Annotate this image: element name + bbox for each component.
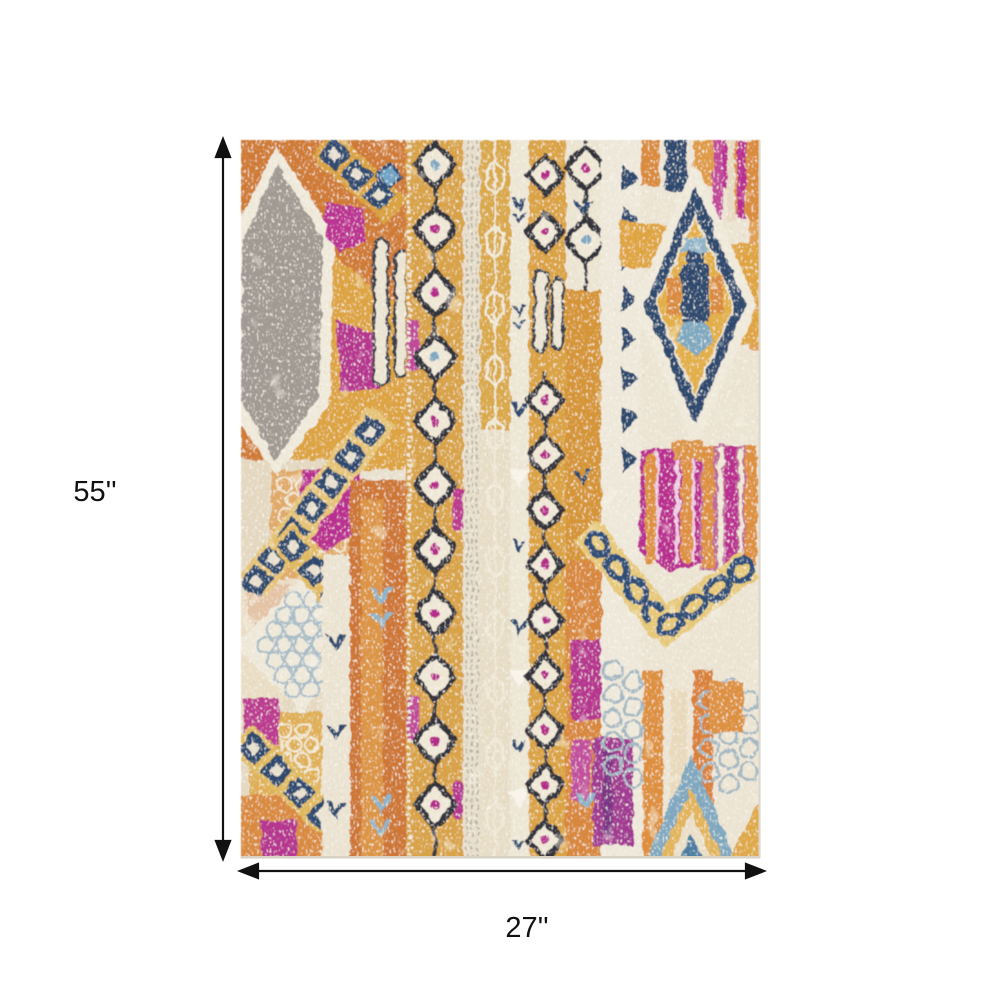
svg-text:27'': 27'' xyxy=(505,912,548,944)
svg-text:55'': 55'' xyxy=(73,476,116,508)
